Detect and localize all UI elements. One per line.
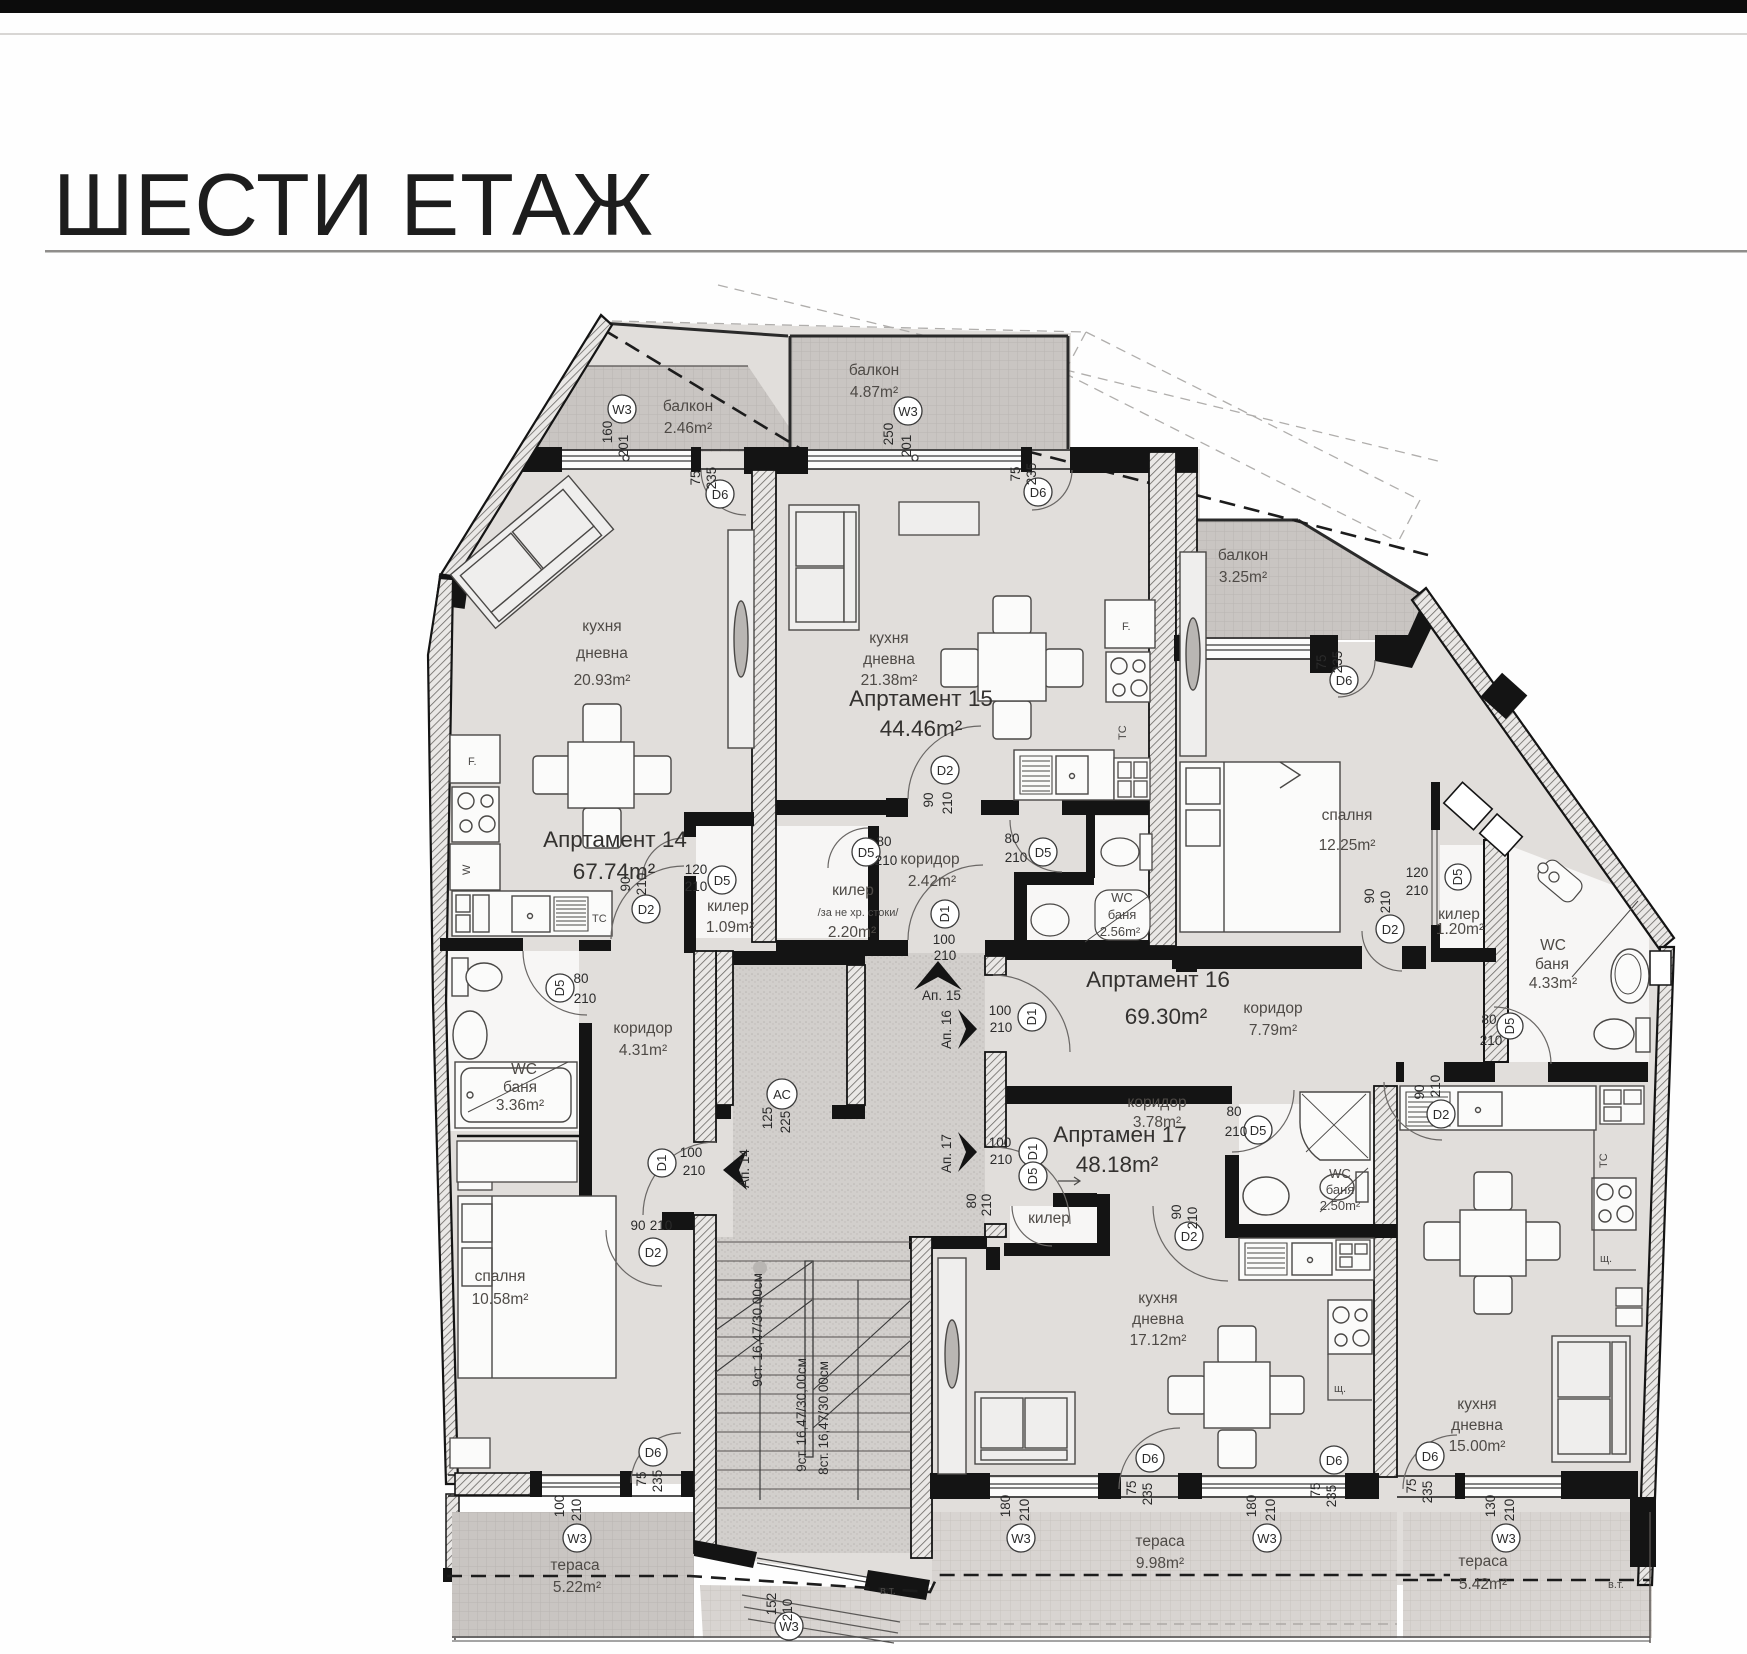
svg-text:100: 100	[989, 1135, 1012, 1150]
svg-text:4.87m²: 4.87m²	[850, 384, 898, 401]
svg-text:75: 75	[688, 470, 703, 485]
svg-text:80: 80	[1481, 1012, 1496, 1027]
svg-text:W3: W3	[1011, 1531, 1031, 1546]
svg-text:D5: D5	[1025, 1168, 1040, 1185]
svg-text:ТС: ТС	[1117, 725, 1129, 740]
svg-text:D5: D5	[1035, 845, 1052, 860]
svg-text:ТС: ТС	[592, 913, 607, 925]
svg-text:D6: D6	[1142, 1451, 1159, 1466]
svg-text:тераса: тераса	[1135, 1533, 1185, 1550]
svg-text:Апртамент 15: Апртамент 15	[849, 686, 993, 711]
svg-text:210: 210	[990, 1020, 1013, 1035]
svg-text:75: 75	[1314, 654, 1329, 669]
svg-text:1.09m²: 1.09m²	[706, 919, 754, 936]
svg-text:210: 210	[780, 1599, 795, 1622]
svg-text:210: 210	[1378, 891, 1393, 914]
svg-text:160: 160	[600, 421, 615, 444]
svg-text:100: 100	[933, 932, 956, 947]
svg-text:7.79m²: 7.79m²	[1249, 1022, 1297, 1039]
svg-text:5.22m²: 5.22m²	[553, 1579, 601, 1596]
svg-text:кухня: кухня	[582, 618, 621, 635]
svg-text:Апртамент 16: Апртамент 16	[1086, 967, 1230, 992]
svg-text:3.78m²: 3.78m²	[1133, 1114, 1181, 1131]
svg-text:D5: D5	[1250, 1123, 1267, 1138]
svg-text:Ап. 15: Ап. 15	[922, 988, 961, 1003]
svg-text:баня: баня	[503, 1079, 537, 1096]
svg-text:201: 201	[899, 435, 914, 458]
svg-text:210: 210	[683, 1163, 706, 1178]
svg-text:WC: WC	[1111, 890, 1133, 905]
svg-text:3.36m²: 3.36m²	[496, 1097, 544, 1114]
svg-text:D2: D2	[937, 763, 954, 778]
svg-text:W3: W3	[567, 1531, 587, 1546]
svg-text:в.т.: в.т.	[1608, 1579, 1624, 1591]
svg-text:D2: D2	[645, 1245, 662, 1260]
svg-text:D6: D6	[1336, 673, 1353, 688]
svg-text:Апртамент 14: Апртамент 14	[543, 827, 687, 852]
svg-text:75: 75	[1308, 1482, 1323, 1497]
svg-text:D6: D6	[1422, 1449, 1439, 1464]
svg-text:67.74m²: 67.74m²	[573, 859, 656, 884]
svg-text:210: 210	[940, 792, 955, 815]
svg-text:100: 100	[552, 1495, 567, 1518]
svg-text:D2: D2	[1181, 1229, 1198, 1244]
svg-text:баня: баня	[1108, 907, 1137, 922]
svg-text:килер: килер	[1028, 1210, 1070, 1227]
svg-text:80: 80	[573, 971, 588, 986]
svg-text:210: 210	[685, 879, 708, 894]
svg-text:15.00m²: 15.00m²	[1449, 1438, 1506, 1455]
svg-text:75: 75	[1404, 1478, 1419, 1493]
svg-text:F.: F.	[1122, 621, 1131, 633]
svg-text:130: 130	[1483, 1495, 1498, 1518]
svg-text:48.18m²: 48.18m²	[1076, 1152, 1159, 1177]
svg-text:Ап. 14: Ап. 14	[737, 1149, 752, 1188]
svg-text:17.12m²: 17.12m²	[1130, 1332, 1187, 1349]
svg-text:210: 210	[875, 853, 898, 868]
svg-text:210: 210	[1185, 1207, 1200, 1230]
svg-text:210: 210	[1502, 1499, 1517, 1522]
svg-text:235: 235	[1140, 1483, 1155, 1506]
svg-text:D5: D5	[552, 980, 567, 997]
svg-text:10.58m²: 10.58m²	[472, 1291, 529, 1308]
svg-text:D6: D6	[1326, 1453, 1343, 1468]
svg-text:210: 210	[1017, 1499, 1032, 1522]
svg-text:коридор: коридор	[1127, 1094, 1186, 1111]
svg-text:20.93m²: 20.93m²	[574, 672, 631, 689]
svg-text:D5: D5	[858, 845, 875, 860]
svg-text:коридор: коридор	[613, 1020, 672, 1037]
svg-text:WC: WC	[1540, 937, 1566, 954]
svg-text:дневна: дневна	[1451, 1417, 1503, 1434]
svg-text:W: W	[461, 864, 473, 875]
svg-text:балкон: балкон	[663, 398, 713, 415]
svg-text:баня: баня	[1535, 956, 1569, 973]
svg-text:3.25m²: 3.25m²	[1219, 569, 1267, 586]
svg-text:/за не хр. стоки/: /за не хр. стоки/	[818, 907, 900, 919]
svg-text:в.т.: в.т.	[880, 1585, 896, 1597]
svg-text:90: 90	[1412, 1084, 1427, 1099]
svg-text:120: 120	[685, 862, 708, 877]
svg-text:кухня: кухня	[1457, 1396, 1496, 1413]
svg-text:2.56m²: 2.56m²	[1100, 924, 1141, 939]
svg-text:АС: АС	[773, 1087, 791, 1102]
svg-text:152: 152	[764, 1593, 779, 1616]
svg-text:210: 210	[1225, 1124, 1248, 1139]
svg-text:W3: W3	[1257, 1531, 1277, 1546]
svg-text:235: 235	[1420, 1481, 1435, 1504]
svg-text:килер: килер	[832, 882, 874, 899]
svg-text:210: 210	[1005, 850, 1028, 865]
svg-text:180: 180	[998, 1495, 1013, 1518]
svg-text:дневна: дневна	[576, 645, 628, 662]
svg-text:D5: D5	[714, 873, 731, 888]
svg-text:210: 210	[1428, 1075, 1443, 1098]
svg-text:9ст. 16,47/30,00см: 9ст. 16,47/30,00см	[750, 1273, 765, 1387]
svg-text:80: 80	[964, 1193, 979, 1208]
svg-text:235: 235	[704, 467, 719, 490]
svg-text:5.42m²: 5.42m²	[1459, 1576, 1507, 1593]
svg-text:201: 201	[616, 435, 631, 458]
svg-text:80: 80	[876, 834, 891, 849]
svg-text:спалня: спалня	[475, 1268, 526, 1285]
svg-text:210: 210	[990, 1152, 1013, 1167]
svg-text:D1: D1	[937, 906, 952, 923]
svg-text:D6: D6	[645, 1445, 662, 1460]
svg-text:210: 210	[650, 1218, 673, 1233]
svg-text:тераса: тераса	[550, 1557, 600, 1574]
svg-text:2.42m²: 2.42m²	[908, 873, 956, 890]
svg-text:D1: D1	[1025, 1144, 1040, 1161]
svg-text:120: 120	[1406, 865, 1429, 880]
svg-text:2.50m²: 2.50m²	[1320, 1198, 1361, 1213]
svg-text:щ.: щ.	[1600, 1253, 1612, 1265]
svg-text:кухня: кухня	[869, 630, 908, 647]
svg-text:225: 225	[778, 1111, 793, 1134]
svg-text:4.33m²: 4.33m²	[1529, 975, 1577, 992]
svg-text:235: 235	[1330, 651, 1345, 674]
svg-text:Ап. 16: Ап. 16	[939, 1010, 954, 1049]
svg-text:210: 210	[979, 1194, 994, 1217]
svg-text:щ.: щ.	[1334, 1383, 1346, 1395]
svg-text:D2: D2	[1433, 1107, 1450, 1122]
svg-text:250: 250	[881, 423, 896, 446]
svg-text:коридор: коридор	[1243, 1000, 1302, 1017]
svg-text:90: 90	[921, 792, 936, 807]
svg-text:210: 210	[1480, 1033, 1503, 1048]
svg-text:9.98m²: 9.98m²	[1136, 1555, 1184, 1572]
svg-text:F.: F.	[468, 756, 477, 768]
svg-text:235: 235	[1324, 1485, 1339, 1508]
svg-text:90: 90	[630, 1218, 645, 1233]
svg-text:9ст. 16,47/30,00см: 9ст. 16,47/30,00см	[794, 1358, 809, 1472]
svg-text:Ап. 17: Ап. 17	[939, 1134, 954, 1173]
svg-text:WC: WC	[1329, 1166, 1351, 1181]
svg-text:D2: D2	[638, 902, 655, 917]
svg-text:балкон: балкон	[1218, 547, 1268, 564]
svg-text:90: 90	[1169, 1204, 1184, 1219]
svg-text:2.20m²: 2.20m²	[828, 924, 876, 941]
svg-text:килер: килер	[707, 898, 749, 915]
svg-text:180: 180	[1244, 1495, 1259, 1518]
svg-text:90: 90	[1362, 888, 1377, 903]
svg-text:80: 80	[1004, 831, 1019, 846]
svg-text:8ст. 16,47/30,00см: 8ст. 16,47/30,00см	[816, 1361, 831, 1475]
svg-text:кухня: кухня	[1138, 1290, 1177, 1307]
svg-text:210: 210	[1406, 883, 1429, 898]
svg-text:235: 235	[1024, 463, 1039, 486]
svg-text:235: 235	[650, 1470, 665, 1493]
svg-text:WC: WC	[511, 1061, 537, 1078]
svg-text:баня: баня	[1326, 1182, 1355, 1197]
svg-text:D1: D1	[1024, 1009, 1039, 1026]
svg-text:балкон: балкон	[849, 362, 899, 379]
svg-text:W3: W3	[898, 404, 918, 419]
svg-text:спалня: спалня	[1322, 807, 1373, 824]
svg-text:1.20m²: 1.20m²	[1436, 921, 1484, 938]
svg-text:D6: D6	[1030, 485, 1047, 500]
svg-text:дневна: дневна	[863, 651, 915, 668]
svg-text:75: 75	[1124, 1480, 1139, 1495]
svg-text:ШЕСТИ ЕТАЖ: ШЕСТИ ЕТАЖ	[53, 155, 654, 254]
svg-text:ТС: ТС	[1598, 1153, 1610, 1168]
svg-text:69.30m²: 69.30m²	[1125, 1004, 1208, 1029]
svg-text:тераса: тераса	[1458, 1553, 1508, 1570]
svg-text:75: 75	[1008, 466, 1023, 481]
svg-text:коридор: коридор	[900, 851, 959, 868]
svg-text:44.46m²: 44.46m²	[880, 716, 963, 741]
svg-text:D1: D1	[654, 1155, 669, 1172]
svg-text:75: 75	[634, 1471, 649, 1486]
svg-text:210: 210	[1263, 1499, 1278, 1522]
svg-text:дневна: дневна	[1132, 1311, 1184, 1328]
svg-text:125: 125	[760, 1107, 775, 1130]
svg-text:80: 80	[1226, 1104, 1241, 1119]
svg-text:D5: D5	[1502, 1018, 1517, 1035]
svg-text:100: 100	[680, 1145, 703, 1160]
svg-text:210: 210	[934, 948, 957, 963]
svg-text:210: 210	[569, 1499, 584, 1522]
svg-text:D5: D5	[1450, 869, 1465, 886]
svg-text:W3: W3	[612, 402, 632, 417]
svg-text:D2: D2	[1382, 922, 1399, 937]
svg-text:100: 100	[989, 1003, 1012, 1018]
svg-text:210: 210	[574, 991, 597, 1006]
svg-text:12.25m²: 12.25m²	[1319, 837, 1376, 854]
svg-text:W3: W3	[1496, 1531, 1516, 1546]
svg-text:2.46m²: 2.46m²	[664, 420, 712, 437]
svg-text:4.31m²: 4.31m²	[619, 1042, 667, 1059]
